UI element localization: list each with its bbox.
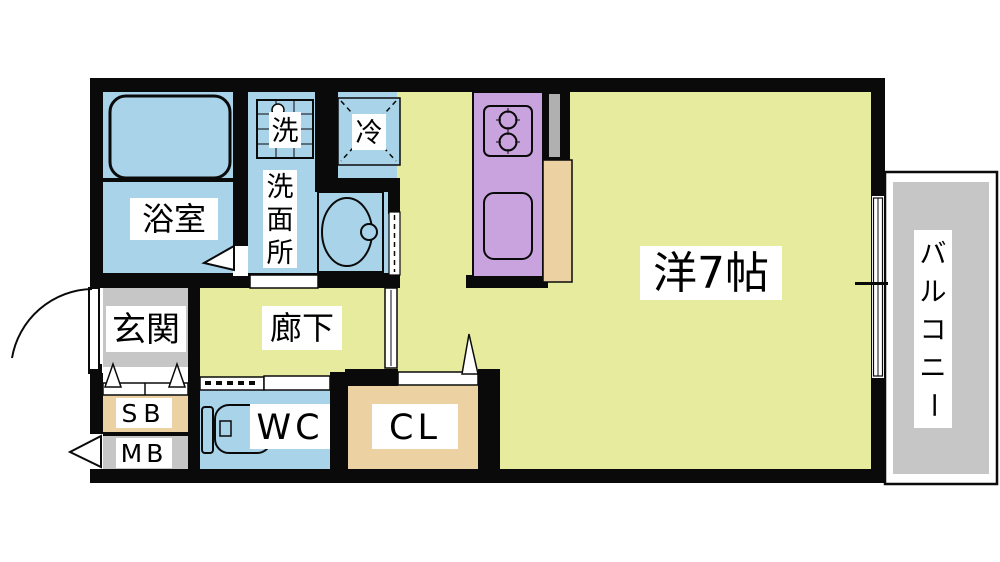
- label-corridor: 廊下: [270, 309, 334, 347]
- label-washroom-1: 洗: [267, 172, 294, 203]
- wc-door-panel: [264, 376, 330, 390]
- label-washroom-3: 所: [267, 238, 294, 269]
- wall-left-upper: [90, 78, 103, 287]
- bathtub-icon: [110, 96, 230, 178]
- pipe-space: [549, 94, 560, 157]
- washroom-opening: [250, 275, 318, 288]
- label-toilet: WC: [256, 408, 323, 448]
- wall-top: [90, 78, 885, 92]
- label-balcony-4: ニ: [920, 353, 947, 384]
- toilet-seat-detail: [220, 421, 231, 436]
- burner-bottom: [500, 134, 517, 151]
- wall-wc-cl: [330, 372, 348, 469]
- floorplan-image: 浴室 洗 洗 面 所 冷 玄関 廊下 洋7帖 バ ル コ ニ ー SB MB W…: [0, 0, 1000, 562]
- floor-plan: 浴室 洗 洗 面 所 冷 玄関 廊下 洋7帖 バ ル コ ニ ー SB MB W…: [0, 0, 1000, 562]
- label-meter-box: MB: [121, 439, 168, 468]
- wall-cl-right: [478, 369, 500, 469]
- vanity-sink-icon: [318, 192, 383, 272]
- bath-door-gap: [233, 246, 248, 276]
- burner-top: [500, 112, 517, 129]
- wall-sb-mb-divider: [103, 432, 188, 436]
- label-bathroom: 浴室: [142, 200, 206, 238]
- label-washroom-2: 面: [267, 205, 294, 236]
- label-closet: CL: [389, 408, 441, 448]
- wall-left-mid: [90, 373, 103, 434]
- balcony-window-latch: [855, 282, 888, 285]
- label-balcony-1: バ: [920, 239, 947, 270]
- toilet-tank: [202, 407, 213, 453]
- wall-bath-washroom: [233, 92, 248, 246]
- label-balcony-2: ル: [920, 277, 947, 308]
- vanity-faucet: [361, 224, 377, 240]
- wall-bottom: [90, 469, 885, 483]
- wall-entrance-corridor: [188, 287, 200, 469]
- label-balcony-5: ー: [917, 392, 948, 419]
- stove-icon: [484, 106, 532, 156]
- wall-below-fridge: [315, 178, 400, 192]
- kitchen-unit: [473, 92, 543, 277]
- label-fridge: 冷: [356, 118, 383, 149]
- label-balcony-3: コ: [920, 315, 947, 346]
- label-main-room: 洋7帖: [653, 248, 769, 299]
- label-laundry: 洗: [272, 116, 299, 147]
- wall-cl-top: [345, 369, 398, 386]
- label-shoe-box: SB: [121, 399, 166, 428]
- bathroom-divider-line: [103, 178, 233, 182]
- wall-washroom-right-stub: [388, 192, 400, 214]
- kitchen-sink-icon: [484, 193, 532, 259]
- label-entrance: 玄関: [112, 310, 180, 350]
- entrance-door-leaf: [89, 288, 99, 370]
- kitchen-side-counter: [543, 160, 572, 282]
- wall-laundry-fridge: [315, 92, 338, 178]
